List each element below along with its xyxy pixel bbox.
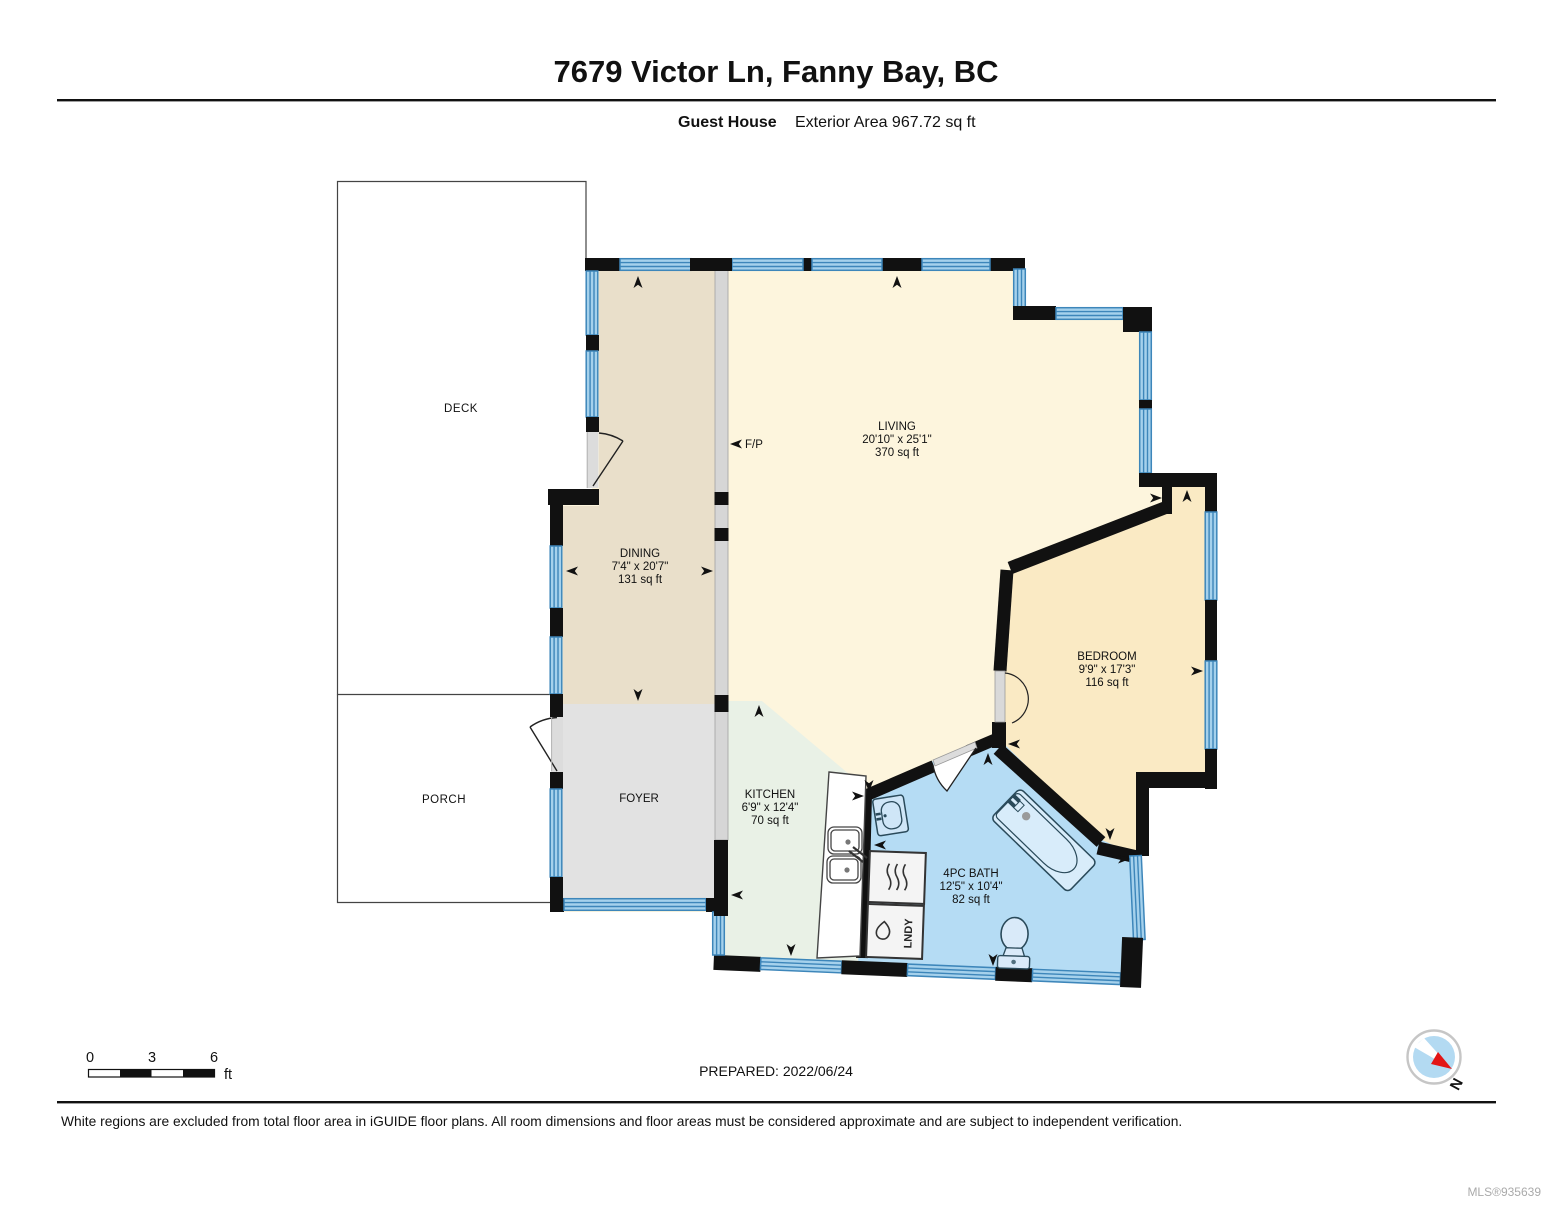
svg-text:116 sq ft: 116 sq ft — [1085, 677, 1129, 689]
svg-text:370 sq ft: 370 sq ft — [875, 447, 920, 459]
svg-text:Guest House: Guest House — [678, 114, 777, 131]
svg-text:9'9" x 17'3": 9'9" x 17'3" — [1079, 664, 1136, 676]
svg-text:BEDROOM: BEDROOM — [1077, 651, 1136, 663]
svg-text:LIVING: LIVING — [878, 421, 916, 433]
svg-text:70 sq ft: 70 sq ft — [751, 815, 790, 827]
svg-text:82 sq ft: 82 sq ft — [952, 894, 991, 906]
svg-text:DINING: DINING — [620, 548, 660, 560]
svg-text:3: 3 — [148, 1050, 156, 1066]
svg-text:0: 0 — [86, 1050, 94, 1066]
svg-text:4PC BATH: 4PC BATH — [943, 868, 998, 880]
svg-text:ft: ft — [224, 1067, 232, 1083]
svg-text:131 sq ft: 131 sq ft — [618, 574, 663, 586]
svg-text:F/P: F/P — [745, 439, 763, 451]
svg-text:PORCH: PORCH — [422, 794, 466, 806]
svg-text:6: 6 — [210, 1050, 218, 1066]
svg-text:LNDY: LNDY — [902, 918, 915, 949]
svg-text:FOYER: FOYER — [619, 793, 659, 805]
svg-text:7'4" x 20'7": 7'4" x 20'7" — [612, 561, 669, 573]
svg-text:KITCHEN: KITCHEN — [745, 789, 795, 801]
svg-text:DECK: DECK — [444, 403, 478, 415]
svg-text:6'9" x 12'4": 6'9" x 12'4" — [742, 802, 799, 814]
svg-text:White regions are excluded fro: White regions are excluded from total fl… — [61, 1114, 1182, 1129]
svg-text:PREPARED: 2022/06/24: PREPARED: 2022/06/24 — [699, 1063, 853, 1079]
svg-text:MLS®935639: MLS®935639 — [1467, 1185, 1541, 1199]
svg-text:20'10" x 25'1": 20'10" x 25'1" — [862, 434, 931, 446]
svg-text:Exterior Area 967.72 sq ft: Exterior Area 967.72 sq ft — [795, 114, 976, 131]
svg-text:7679 Victor Ln, Fanny Bay, BC: 7679 Victor Ln, Fanny Bay, BC — [553, 54, 998, 89]
svg-text:12'5" x 10'4": 12'5" x 10'4" — [939, 881, 1002, 893]
